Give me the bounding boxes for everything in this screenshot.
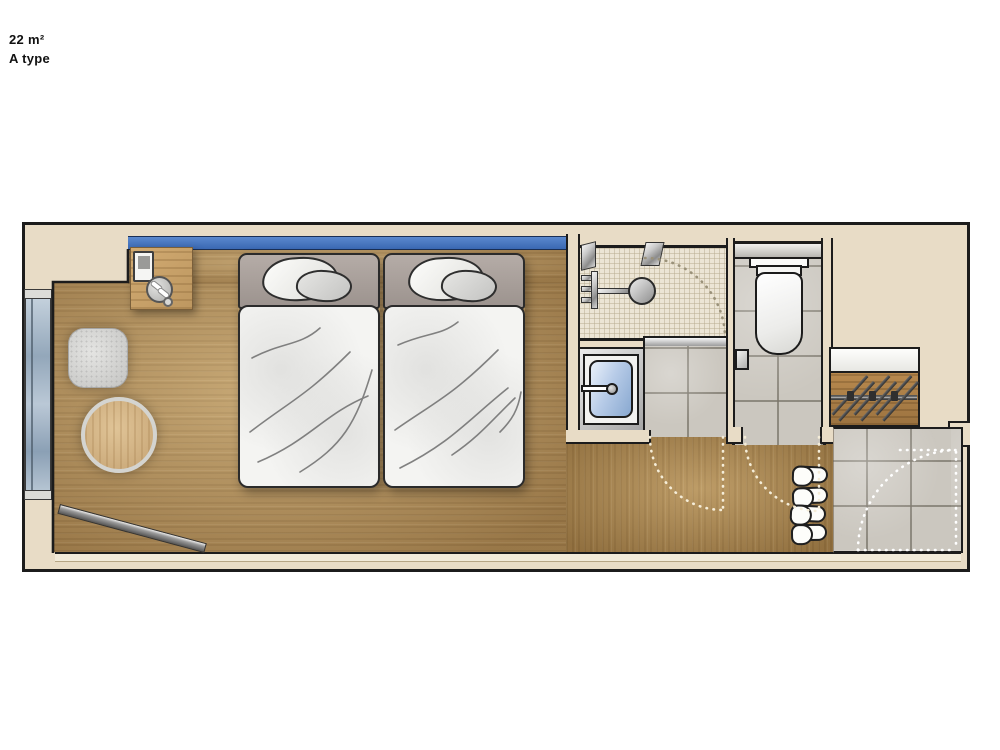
- bed-right: [383, 253, 525, 488]
- ottoman: [68, 328, 128, 388]
- closet-shelf: [829, 347, 920, 374]
- wall-stub-toilet-left: [726, 427, 743, 444]
- shower-glass-panel: [581, 241, 596, 271]
- shower-handle-bottom: [581, 297, 592, 303]
- type-label: A type: [9, 49, 50, 68]
- bed-left-duvet: [238, 305, 380, 488]
- round-table: [81, 397, 157, 473]
- headboard-accent: [128, 236, 566, 250]
- faucet-knob: [606, 383, 618, 395]
- hanger-clip: [847, 391, 854, 401]
- phone: [133, 251, 154, 282]
- baseboard-trim: [55, 552, 961, 562]
- bed-right-duvet: [383, 305, 525, 488]
- wall-below-sink: [566, 430, 651, 444]
- window-sill-top: [24, 289, 52, 299]
- shower-head: [628, 277, 656, 305]
- window-sill-bottom: [24, 490, 52, 500]
- shower-handle-mid: [581, 286, 592, 292]
- shower-handle-top: [581, 275, 592, 281]
- wall-vestibule-toilet: [726, 238, 735, 429]
- wall-bedroom-bathroom: [566, 234, 580, 444]
- toilet-paper-holder: [735, 349, 749, 370]
- slipper: [790, 504, 827, 523]
- toilet-bowl: [755, 272, 803, 355]
- entry-floor: [833, 427, 963, 553]
- phone-screen: [138, 256, 150, 269]
- hanger-clip: [891, 391, 898, 401]
- slipper: [792, 465, 829, 483]
- wall-stub-toilet-right: [820, 427, 833, 444]
- bathroom-vestibule-floor: [645, 346, 726, 437]
- window-mullion: [31, 299, 33, 490]
- floor-plan: 22 m² A type: [0, 0, 1000, 750]
- slipper: [792, 486, 829, 504]
- window-glazing: [24, 299, 52, 490]
- bed-left: [238, 253, 380, 488]
- area-label: 22 m²: [9, 30, 44, 49]
- hanger-clip: [869, 391, 876, 401]
- kettle-handle: [163, 297, 173, 307]
- closet-rod-section: [829, 371, 920, 427]
- slipper: [791, 524, 827, 542]
